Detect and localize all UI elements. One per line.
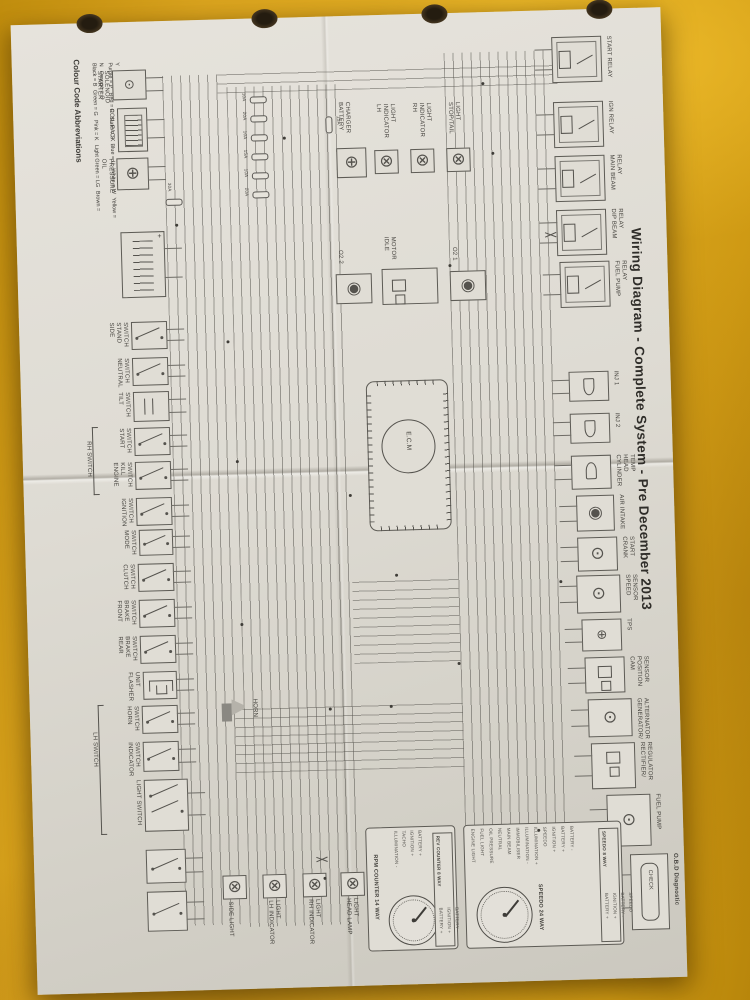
idle-motor-label: IDLE MOTOR	[382, 237, 397, 267]
sensor-box: ◉	[576, 495, 615, 532]
injector-2: INJ 2	[570, 413, 611, 444]
main-beam-relay: MAIN BEAM RELAY	[554, 155, 605, 202]
switch-box	[146, 849, 187, 884]
rectifier-regulator: RECTIFIER/ REGULATOR	[591, 742, 636, 789]
fuse-icon	[250, 115, 267, 122]
tps-sensor: ⊕ TPS	[581, 618, 622, 651]
generator-icon: ⊙	[603, 707, 618, 727]
pin-label: IGNITION +	[408, 830, 415, 882]
switch-box	[142, 705, 179, 734]
fuse-icon	[252, 191, 269, 198]
horn-switch: HORN SWITCH	[142, 705, 179, 734]
switch-contact-icon	[153, 858, 178, 870]
injector-icon	[584, 420, 595, 437]
crank-start-label: CRANK START	[620, 536, 635, 572]
generator-box: ⊙	[588, 698, 633, 737]
battery-positive-terminal: +	[157, 233, 161, 240]
fuse: 10A	[243, 168, 269, 183]
switch-contact-icon	[152, 800, 179, 813]
start-relay-label: START RELAY	[604, 36, 612, 82]
gauge-ticks	[480, 890, 529, 939]
ecu-pins	[377, 380, 437, 387]
terminal	[178, 866, 181, 869]
connector-icon: ◉	[460, 275, 475, 295]
punch-hole	[421, 4, 448, 24]
terminal	[164, 476, 167, 479]
battery-plates-icon	[133, 240, 154, 291]
lh-switch-bracket: LH SWITCH	[98, 705, 108, 835]
sensor-box	[584, 656, 625, 693]
ecu-label: E.C.M	[405, 431, 413, 461]
sensor-box: ⊕	[581, 618, 622, 651]
punch-hole	[251, 9, 278, 29]
lh-indicator-light-label: LH INDICATOR LIGHT	[266, 900, 281, 952]
ecu-circle: E.C.M	[381, 419, 436, 474]
ignition-switch-label: IGNITION SWITCH	[119, 498, 134, 528]
sensor-box: ◉	[450, 270, 487, 301]
horn-switch-label: HORN SWITCH	[125, 706, 140, 736]
switch-box	[134, 427, 171, 456]
bulb-icon: ⊗	[307, 875, 322, 895]
rpm-counter-label: RPM COUNTER 14 WAY	[371, 854, 381, 946]
speedo-gauge	[476, 886, 534, 944]
pin-label: BATTERY +	[437, 908, 444, 960]
pin-label: SPEEDO	[541, 827, 548, 879]
switch-contact-icon	[145, 535, 166, 545]
fuse: 10A	[242, 130, 268, 145]
indicator-switch: INDICATOR SWITCH	[143, 741, 180, 772]
fuse: 15A	[242, 149, 268, 164]
battery-charger-box: ⊕	[336, 147, 367, 178]
bulb-icon: ⊗	[267, 876, 282, 896]
light-switch-label: LIGHT SWITCH	[134, 780, 142, 830]
head-lamp-light-label: HEAD LAMP LIGHT	[344, 898, 359, 950]
solenoid-icon: ⊙	[124, 77, 135, 93]
main-beam-relay-label: MAIN BEAM RELAY	[607, 154, 622, 200]
relay-box	[556, 209, 607, 256]
fuse-icon	[252, 172, 269, 179]
side-light: ⊗ SIDE LIGHT	[222, 875, 247, 900]
lamp-box: ⊗	[446, 147, 471, 172]
fuse-rating: 20A	[241, 112, 247, 126]
wire-twist	[316, 855, 328, 863]
tilt-switch: TILT SWITCH	[133, 391, 170, 422]
switch-box	[139, 529, 174, 556]
tps-icon: ⊕	[596, 627, 607, 643]
wire-twist	[545, 230, 557, 238]
sensor-box	[571, 455, 612, 490]
injector-icon	[583, 378, 594, 395]
auxiliary-switch	[147, 891, 188, 932]
switch-contact-icon	[144, 570, 166, 580]
paper-sheet: Wiring Diagram - Complete System - Pre D…	[11, 7, 688, 995]
fuse: 10A	[241, 92, 267, 107]
relay-box	[551, 36, 602, 83]
rear-brake-switch-label: REAR BRAKE SWITCH	[116, 636, 138, 667]
rpm-gauge	[388, 895, 439, 946]
oil-pressure-sensor: ⊕ OIL PRESSURE	[116, 157, 149, 190]
terminal	[160, 336, 163, 339]
terminal	[151, 867, 154, 870]
relay-coil-icon	[559, 51, 571, 69]
pin-label: IGNITION +	[445, 907, 452, 959]
wire-channel	[444, 50, 570, 921]
speedo-pin-labels: ENGINE LIGHTFUEL LIGHTOIL PRESSURENEUTRA…	[469, 826, 575, 881]
pin-label: BATTERY +	[416, 830, 423, 882]
switch-box	[131, 321, 168, 350]
coil-pack: COIL PACK	[117, 107, 148, 152]
pin-label: MAIN BEAM	[505, 828, 512, 880]
fuse: 20A	[241, 111, 267, 126]
relay-box	[554, 155, 605, 202]
switch-box	[143, 741, 180, 772]
clutch-switch: CLUTCH SWITCH	[138, 563, 175, 592]
fuse-rating: 15A	[242, 150, 248, 164]
connector-icon: ◉	[346, 278, 361, 298]
fuse-icon	[250, 96, 267, 103]
motor-box	[382, 267, 439, 305]
relay-coil-icon	[567, 275, 579, 293]
lh-indicator-light: ⊗ LH INDICATOR LIGHT	[262, 874, 287, 899]
terminal	[166, 543, 169, 546]
ign-relay: IGN RELAY	[553, 101, 604, 148]
rh-indicator-label: RH INDICATOR LIGHT	[410, 103, 432, 148]
crank-start-sensor: ⊙ CRANK START	[577, 537, 618, 572]
switch-box	[139, 599, 176, 628]
switch-box	[132, 357, 169, 386]
terminal	[169, 650, 172, 653]
o2-sensor-2: ◉ O2 2	[336, 273, 373, 304]
lh-switch-group-label: LH SWITCH	[90, 732, 99, 792]
switch-box	[138, 563, 175, 592]
neutral-switch: NEUTRAL SWITCH	[132, 357, 169, 386]
oil-pressure-box: ⊕	[116, 157, 149, 190]
speedo-label: SPEEDO 24 WAY	[536, 884, 545, 942]
ignition-switch: IGNITION SWITCH	[136, 497, 173, 526]
o2-sensor-1: ◉ O2 1	[450, 270, 487, 301]
aux-fuse: 15A	[325, 116, 332, 133]
switch-box	[136, 497, 173, 526]
relay-box	[559, 261, 610, 308]
rev-counter-connector: REV COUNTER 8 WAY BATTERY +IGNITION +BAT…	[432, 832, 455, 947]
fuse-rating: 10A	[242, 131, 248, 145]
battery: +	[120, 231, 166, 298]
switch-contact-icon	[140, 434, 162, 444]
terminal	[171, 719, 174, 722]
side-light-label: SIDE LIGHT	[226, 901, 234, 953]
fuel-pump-label: FUEL PUMP	[653, 793, 661, 843]
engine-kill-switch: ENGINE KILL SWITCH	[135, 461, 172, 490]
air-intake-sensor: ◉ AIR INTAKE	[576, 495, 615, 532]
switch-contact-icon	[149, 749, 171, 759]
rectifier-icon	[606, 752, 620, 764]
oil-pressure-label: OIL PRESSURE	[99, 158, 114, 192]
lamp-box: ⊗	[262, 874, 287, 899]
switch-contact-icon	[148, 712, 170, 722]
bulb-icon: ⊗	[415, 150, 430, 170]
injector-box	[568, 371, 609, 402]
rear-brake-switch: REAR BRAKE SWITCH	[140, 635, 177, 664]
tilt-plates-icon	[144, 398, 145, 415]
terminal	[161, 372, 164, 375]
rh-indicator-light-label: RH INDICATOR LIGHT	[306, 899, 321, 951]
terminal	[167, 578, 170, 581]
photo-of-wiring-diagram: Wiring Diagram - Complete System - Pre D…	[0, 0, 750, 1000]
flasher-unit-label: FLASHER UNIT	[126, 672, 141, 702]
stop-tail-label: STOP/TAIL LIGHT	[446, 102, 461, 146]
ecu-pins	[443, 388, 452, 520]
lamp-box: ⊗	[302, 873, 327, 898]
terminal	[143, 543, 146, 546]
terminal	[149, 795, 152, 798]
pin-label: ILLUMINATION -	[392, 831, 399, 883]
pin-label: ENGINE LIGHT	[469, 829, 476, 881]
speedo-cluster: ENGINE LIGHTFUEL LIGHTOIL PRESSURENEUTRA…	[463, 821, 624, 949]
rpm-counter-cluster: ILLUMINATION -TACHOIGNITION +BATTERY + R…	[365, 825, 458, 951]
rh-indicator-light: ⊗ RH INDICATOR LIGHT	[302, 873, 327, 898]
air-intake-label: AIR INTAKE	[617, 494, 625, 530]
relay-box	[553, 101, 604, 148]
speed-sensor: ⊙ SPEED SENSOR	[576, 574, 621, 613]
mode-switch-label: MODE SWITCH	[122, 530, 137, 558]
coil-pack-label: COIL PACK	[107, 108, 115, 152]
horn-label: HORN	[250, 699, 258, 725]
rh-switch-group-label: RH SWITCH	[84, 441, 93, 501]
rpm-pin-labels: ILLUMINATION -TACHOIGNITION +BATTERY +	[392, 830, 423, 883]
temp-sensor-icon	[586, 462, 597, 479]
battery-charger: ⊕ BATTERY CHARGER	[336, 147, 367, 178]
switch-box	[135, 461, 172, 490]
switch-contact-icon	[154, 903, 179, 915]
pin-label: ILLUMINATION -	[523, 827, 530, 879]
ign-relay-label: IGN RELAY	[606, 100, 614, 146]
terminal	[172, 757, 175, 760]
switch-contact-icon	[137, 328, 159, 338]
pin-label: NEUTRAL	[496, 828, 503, 880]
punch-hole	[586, 0, 613, 19]
injector-1: INJ 1	[568, 371, 609, 402]
switch-box	[140, 635, 177, 664]
sensor-box: ⊙	[576, 574, 621, 613]
speedo-connector: SPEEDO 8 WAY BATTERY +IGNITION +BATTERY …	[598, 828, 621, 943]
o2-sensor-2-label: O2 2	[336, 250, 344, 272]
start-relay: START RELAY	[551, 36, 602, 83]
indicator-switch-label: INDICATOR SWITCH	[126, 742, 141, 774]
terminal	[163, 442, 166, 445]
generator-alternator: ⊙ GENERATOR/ ALTERNATOR	[588, 698, 633, 737]
bulb-icon: ⊗	[345, 873, 360, 893]
gauge-ticks	[392, 899, 435, 942]
obd-box: CHECK	[630, 853, 670, 930]
lh-indicator-lamp-top: ⊗ LH INDICATOR LIGHT	[374, 149, 399, 174]
pin-label: BATTERY +	[559, 826, 566, 878]
cylinder-head-temp-label: CYLINDER HEAD TEMP	[614, 454, 636, 491]
rectifier-regulator-label: RECTIFIER/ REGULATOR	[638, 742, 653, 790]
pin-label: BATTERY -	[619, 892, 626, 944]
flasher-unit: FLASHER UNIT	[143, 671, 178, 700]
fuse-icon	[251, 153, 268, 160]
ecu-pins	[366, 390, 375, 522]
start-switch-label: START SWITCH	[117, 428, 132, 458]
pin-label: IGNITION +	[611, 893, 618, 945]
injector-2-label: INJ 2	[613, 412, 621, 442]
start-switch: START SWITCH	[134, 427, 171, 456]
engine-kill-switch-label: ENGINE KILL SWITCH	[111, 462, 133, 493]
flasher-box	[143, 671, 178, 700]
light-switch: LIGHT SWITCH	[144, 779, 189, 832]
fuse-rating: 10A	[243, 169, 249, 183]
colour-code-heading: Colour Code Abbreviations	[72, 59, 86, 229]
auxiliary-switch	[146, 849, 187, 884]
idle-motor: IDLE MOTOR	[382, 267, 439, 305]
fuel-pump-relay-label: FUEL PUMP RELAY	[612, 260, 627, 306]
obd-check-label: CHECK	[646, 870, 654, 914]
sensor-box: ⊙	[577, 537, 618, 572]
switch-box	[133, 391, 170, 422]
relay-coil-icon	[563, 224, 575, 242]
bulb-icon: ⊗	[451, 149, 466, 169]
rh-switch-bracket: RH SWITCH	[92, 427, 100, 495]
sensor-icon: ⊙	[591, 583, 606, 603]
front-brake-switch-label: FRONT BRAKE SWITCH	[115, 600, 137, 631]
bulb-icon: ⊗	[227, 877, 242, 897]
fuse-rating: 10A	[241, 93, 247, 107]
charger-icon: ⊕	[344, 152, 359, 172]
cam-position-sensor-label: CAM POSITION SENSOR	[627, 656, 649, 697]
injector-box	[570, 413, 611, 444]
switch-box	[144, 779, 189, 832]
coil-pack-box	[117, 107, 148, 152]
flasher-waveform-icon	[149, 680, 173, 692]
stop-tail-lamp: ⊗ STOP/TAIL LIGHT	[446, 147, 471, 172]
fuel-pump-relay: FUEL PUMP RELAY	[559, 261, 610, 308]
cam-sensor-icon	[598, 666, 612, 678]
rh-indicator-lamp-top: ⊗ RH INDICATOR LIGHT	[410, 148, 435, 173]
relay-coil-icon	[562, 170, 574, 188]
ecu-pins	[381, 524, 441, 531]
switch-contact-icon	[145, 606, 167, 616]
wire-channel	[235, 701, 465, 773]
sensor-box: ◉	[336, 273, 373, 304]
ecu: E.C.M	[366, 379, 452, 531]
pin-label: IGNITION +	[550, 826, 557, 878]
pin-label: FUEL LIGHT	[478, 828, 485, 880]
rev-counter-connector-label: REV COUNTER 8 WAY	[434, 836, 443, 906]
switch-contact-icon	[142, 504, 164, 514]
switch-contact-icon	[151, 784, 178, 797]
fuse-icon	[325, 116, 332, 133]
cam-position-sensor: CAM POSITION SENSOR	[584, 656, 625, 693]
o2-sensor-1-label: O2 1	[450, 247, 458, 269]
ecu-box: E.C.M	[366, 379, 452, 531]
obd-diagnostic-label: O.B.D Diagnostic	[671, 853, 680, 929]
terminal	[168, 614, 171, 617]
switch-contact-icon	[138, 364, 160, 374]
starter-solenoid: ⊙ STARTER SOLENOID	[112, 70, 147, 101]
pin-label: OIL PRESSURE	[487, 828, 494, 880]
wire-channel	[226, 84, 361, 927]
fuse: 20A	[243, 187, 269, 202]
rectifier-box	[591, 742, 636, 789]
oil-pressure-icon: ⊕	[125, 163, 140, 183]
rpm-cluster-box: ILLUMINATION -TACHOIGNITION +BATTERY + R…	[365, 825, 458, 951]
terminal	[180, 912, 183, 915]
pin-label: ILLUMINATION +	[532, 827, 539, 879]
fuse-icon	[251, 134, 268, 141]
dip-beam-relay-label: DIP BEAM RELAY	[609, 208, 624, 254]
pin-label: TACHO	[400, 831, 407, 883]
obd-connector: CHECK O.B.D Diagnostic	[630, 853, 670, 930]
fuse-rating: 20A	[243, 188, 249, 202]
sensor-icon: ⊙	[590, 543, 605, 563]
pin-label: BATTERY -	[453, 907, 460, 959]
switch-contact-icon	[141, 468, 163, 478]
pin-label: BATTERY -	[568, 826, 575, 878]
injector-1-label: INJ 1	[611, 370, 619, 400]
dip-beam-relay: DIP BEAM RELAY	[556, 209, 607, 256]
lamp-box: ⊗	[374, 149, 399, 174]
head-lamp-light: ⊗ HEAD LAMP LIGHT	[340, 872, 365, 897]
tilt-switch-label: TILT SWITCH	[116, 392, 131, 422]
switch-contact-icon	[146, 642, 168, 652]
pump-icon: ⊙	[622, 810, 637, 830]
pin-label: BATTERY +	[603, 893, 610, 945]
pin-label: IMMOBILISER	[514, 827, 521, 879]
starter-solenoid-label: STARTER SOLENOID	[95, 71, 110, 105]
bulb-icon: ⊗	[379, 151, 394, 171]
generator-alternator-label: GENERATOR/ ALTERNATOR	[635, 698, 650, 740]
terminal	[180, 810, 183, 813]
fuse-icon	[165, 199, 182, 206]
speedo-connector-pins: BATTERY +IGNITION +BATTERY -SPEEDO	[603, 892, 634, 945]
horn-speaker-icon	[222, 703, 232, 721]
battery-box: +	[120, 231, 166, 298]
side-stand-switch: SIDE STAND SWITCH	[131, 321, 168, 350]
terminal	[152, 912, 155, 915]
speedo-connector-label: SPEEDO 8 WAY	[600, 831, 609, 891]
fuse-block: 10A 20A 10A 15A 10A 20A	[241, 92, 270, 202]
lamp-box: ⊗	[222, 875, 247, 900]
front-brake-switch: FRONT BRAKE SWITCH	[139, 599, 176, 628]
mode-switch: MODE SWITCH	[139, 529, 174, 556]
colour-code-entry: Pink = K	[92, 120, 99, 141]
obd-plug-icon: CHECK	[640, 863, 660, 921]
starter-solenoid-box: ⊙	[112, 70, 147, 101]
wire-channel	[352, 573, 460, 664]
lamp-box: ⊗	[410, 148, 435, 173]
speedo-cluster-box: ENGINE LIGHTFUEL LIGHTOIL PRESSURENEUTRA…	[463, 821, 624, 949]
motor-icon	[392, 279, 406, 291]
switch-box	[147, 891, 188, 932]
terminal	[165, 512, 168, 515]
coil-icon	[124, 115, 143, 147]
punch-hole	[76, 14, 103, 34]
wire-junctions	[11, 25, 14, 28]
clutch-switch-label: CLUTCH SWITCH	[121, 564, 136, 594]
horn: HORN	[221, 699, 248, 728]
battery-fuse-rating: 30A	[166, 183, 172, 197]
neutral-switch-label: NEUTRAL SWITCH	[115, 358, 130, 388]
multi-pin-connector-icon: ◉	[588, 503, 603, 523]
rev-counter-pins: BATTERY +IGNITION +BATTERY -	[437, 907, 460, 960]
speed-sensor-label: SPEED SENSOR	[623, 574, 638, 612]
relay-coil-icon	[560, 116, 572, 134]
lh-indicator-label: LH INDICATOR LIGHT	[374, 104, 396, 149]
lamp-box: ⊗	[340, 872, 365, 897]
battery-charger-label: BATTERY CHARGER	[336, 102, 351, 146]
cylinder-head-temp-sensor: CYLINDER HEAD TEMP	[571, 455, 612, 490]
tps-label: TPS	[624, 618, 632, 650]
